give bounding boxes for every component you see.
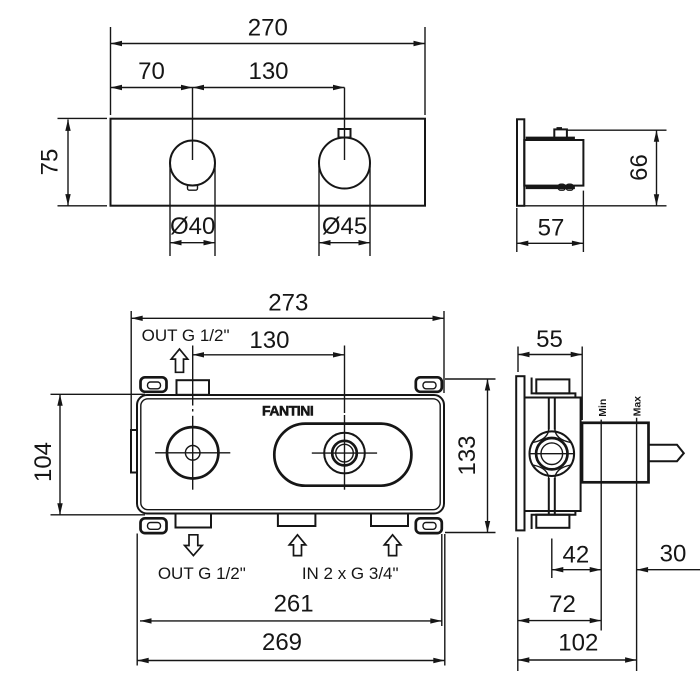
svg-text:70: 70	[138, 58, 165, 85]
svg-text:OUT G 1/2": OUT G 1/2"	[158, 564, 246, 583]
svg-text:Ø40: Ø40	[170, 213, 215, 240]
svg-text:130: 130	[249, 327, 289, 354]
svg-text:57: 57	[538, 215, 565, 242]
svg-text:270: 270	[248, 15, 288, 42]
svg-text:Max: Max	[631, 396, 643, 417]
svg-text:42: 42	[563, 541, 590, 568]
svg-text:130: 130	[248, 58, 288, 85]
svg-text:104: 104	[30, 442, 57, 482]
svg-text:IN 2 x G 3/4": IN 2 x G 3/4"	[302, 564, 399, 583]
svg-text:Ø45: Ø45	[322, 213, 367, 240]
svg-text:75: 75	[36, 149, 63, 176]
svg-text:Min: Min	[597, 399, 609, 417]
svg-text:30: 30	[660, 541, 687, 568]
svg-text:269: 269	[262, 629, 302, 656]
svg-text:55: 55	[536, 326, 563, 353]
svg-text:72: 72	[549, 591, 576, 618]
svg-text:OUT G 1/2": OUT G 1/2"	[142, 326, 230, 345]
svg-text:66: 66	[626, 154, 653, 181]
svg-text:102: 102	[558, 629, 598, 656]
svg-text:FANTINI: FANTINI	[262, 403, 313, 419]
svg-text:261: 261	[274, 591, 314, 618]
svg-text:273: 273	[268, 290, 308, 317]
svg-text:133: 133	[454, 435, 481, 475]
